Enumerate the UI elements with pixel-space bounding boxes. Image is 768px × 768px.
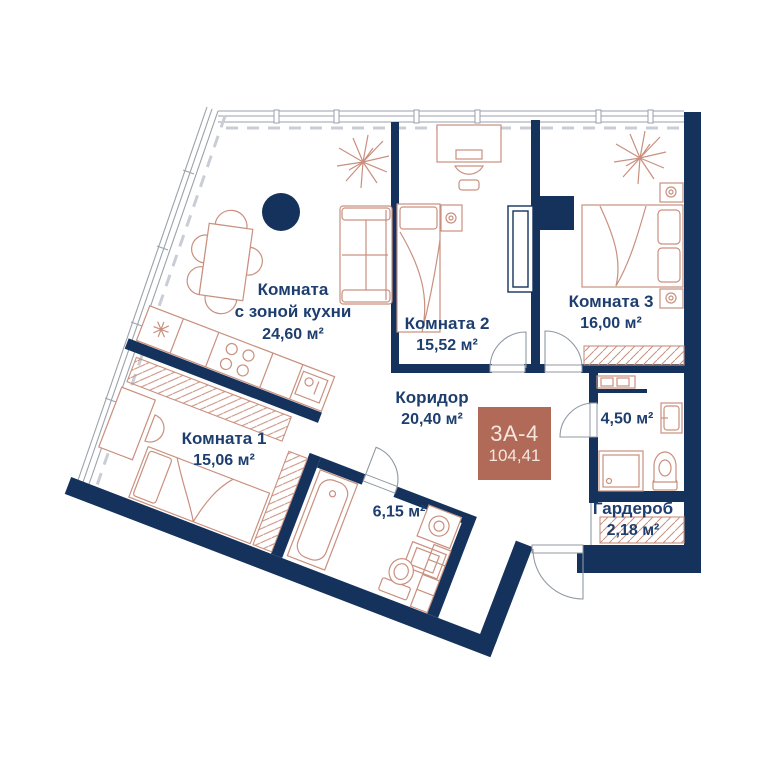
- toilet-wc: [653, 452, 677, 490]
- room-label-wc: 4,50 м²: [601, 408, 654, 429]
- room-label-corridor: Коридор 20,40 м²: [395, 387, 468, 431]
- room-label-room3: Комната 3 16,00 м²: [569, 291, 654, 335]
- plan-total-area: 104,41: [489, 446, 541, 466]
- shower: [599, 451, 643, 491]
- room-label-living: Комната с зоной кухни 24,60 м²: [235, 279, 352, 345]
- nightstand-room3-bottom: [660, 289, 683, 308]
- room-name: Комната 1: [182, 428, 267, 450]
- column: [262, 193, 300, 231]
- floor-plan-drawing: [0, 0, 768, 768]
- room-area: 20,40 м²: [395, 410, 468, 431]
- room-name: Комната: [235, 279, 352, 301]
- plan-badge: 3А-4 104,41: [478, 407, 551, 480]
- plan-code: 3А-4: [490, 421, 538, 446]
- door-wc: [560, 403, 597, 437]
- room-label-wardrobe: Гардероб 2,18 м²: [593, 498, 673, 542]
- room-area: 15,06 м²: [182, 451, 267, 472]
- room-name: Коридор: [395, 387, 468, 409]
- room-name: Комната 2: [405, 313, 490, 335]
- room-label-room1: Комната 1 15,06 м²: [182, 428, 267, 472]
- floor-plan: Комната с зоной кухни 24,60 м² Комната 2…: [0, 0, 768, 768]
- room-area: 24,60 м²: [235, 324, 352, 345]
- door-room2: [490, 332, 526, 372]
- plant-living-icon: [337, 135, 389, 188]
- wardrobe-strip-room3: [584, 346, 684, 365]
- room-area: 2,18 м²: [593, 521, 673, 542]
- entrance-door: [532, 545, 583, 599]
- room-area: 4,50 м²: [601, 408, 654, 429]
- room-area: 15,52 м²: [405, 336, 490, 357]
- room-name: Комната 3: [569, 291, 654, 313]
- plant-room3-icon: [614, 131, 666, 184]
- room-label-bathroom: 6,15 м²: [373, 501, 426, 522]
- room-label-room2: Комната 2 15,52 м²: [405, 313, 490, 357]
- door-bathroom: [363, 447, 408, 493]
- wardrobe-room2: [508, 206, 533, 292]
- nightstand-room3-top: [660, 183, 683, 202]
- shelf-niche: [597, 376, 635, 388]
- room-area: 16,00 м²: [569, 314, 654, 335]
- room-name: Гардероб: [593, 498, 673, 520]
- sink-wc: [661, 403, 682, 433]
- bed-room3: [582, 205, 683, 287]
- desk-room2: [437, 125, 501, 190]
- room-area: 6,15 м²: [373, 501, 426, 522]
- room-name-2: с зоной кухни: [235, 301, 352, 323]
- door-room3: [545, 331, 582, 372]
- nightstand-room2: [441, 205, 462, 231]
